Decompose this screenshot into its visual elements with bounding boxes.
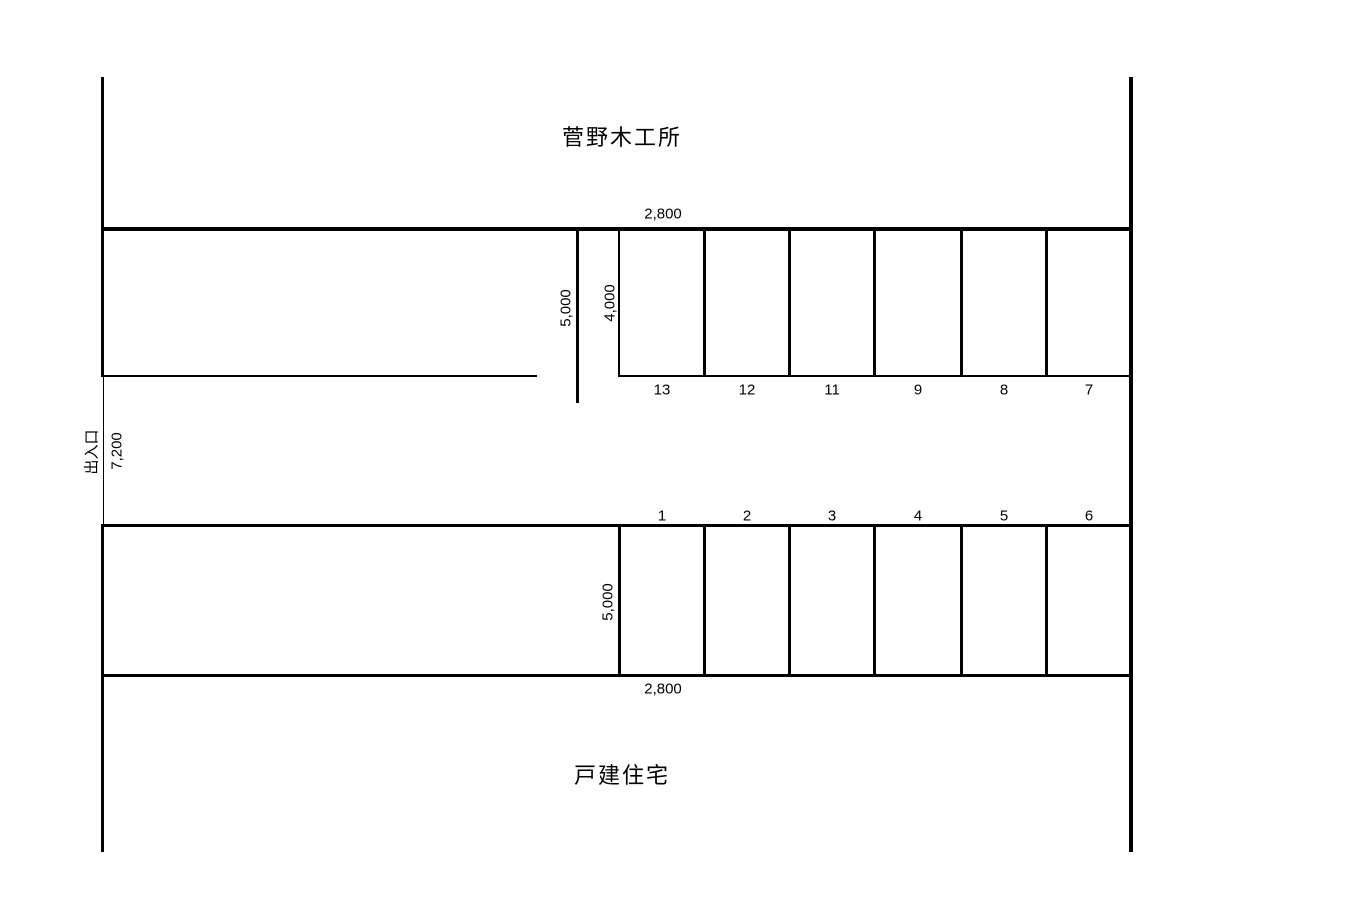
lower-stall-divider-line <box>788 524 791 677</box>
lower-stall-divider-line <box>873 524 876 677</box>
upper-stall-divider-line <box>788 227 791 377</box>
dimension-bottom-space-width: 2,800 <box>644 682 682 697</box>
stall-number-9: 9 <box>914 383 922 398</box>
stall-number-4: 4 <box>914 509 922 524</box>
upper-stall-divider-line <box>960 227 963 377</box>
site-right-boundary-line <box>1129 77 1133 852</box>
stall-number-5: 5 <box>1000 509 1008 524</box>
stall-number-13: 13 <box>654 383 671 398</box>
dimension-entrance-width: 7,200 <box>110 432 125 470</box>
lower-stall-divider-line <box>960 524 963 677</box>
bottom-building-label: 戸建住宅 <box>574 765 670 787</box>
dimension-upper-row-depth: 4,000 <box>603 284 618 322</box>
stall-number-12: 12 <box>739 383 756 398</box>
lower-stall-divider-line <box>1045 524 1048 677</box>
stall-number-6: 6 <box>1085 509 1093 524</box>
upper-stall-divider-line <box>703 227 706 377</box>
lower-stall-divider-line <box>703 524 706 677</box>
entrance-label: 出入口 <box>85 429 100 474</box>
site-left-boundary-upper-line <box>101 77 104 377</box>
stall-number-7: 7 <box>1085 383 1093 398</box>
entrance-opening-line <box>103 377 104 526</box>
stall-number-3: 3 <box>828 509 836 524</box>
stall-number-11: 11 <box>824 383 840 398</box>
dimension-upper-left-depth: 5,000 <box>559 289 574 327</box>
parking-lot-site-plan: 菅野木工所 戸建住宅 出入口 2,800 5,000 4,000 7,200 5… <box>0 0 1345 921</box>
upper-stall-divider-line <box>873 227 876 377</box>
upper-area-base-line-left <box>103 375 537 377</box>
stall-number-2: 2 <box>743 509 751 524</box>
stall-number-8: 8 <box>1000 383 1008 398</box>
site-left-boundary-lower-line <box>101 524 104 852</box>
upper-stall-divider-line <box>1045 227 1048 377</box>
top-building-label: 菅野木工所 <box>562 127 682 149</box>
dimension-top-space-width: 2,800 <box>644 207 682 222</box>
stall-number-1: 1 <box>658 509 666 524</box>
upper-dividing-wall-line <box>576 227 579 403</box>
dimension-lower-row-depth: 5,000 <box>601 583 616 621</box>
lower-stall-divider-line <box>618 524 621 677</box>
